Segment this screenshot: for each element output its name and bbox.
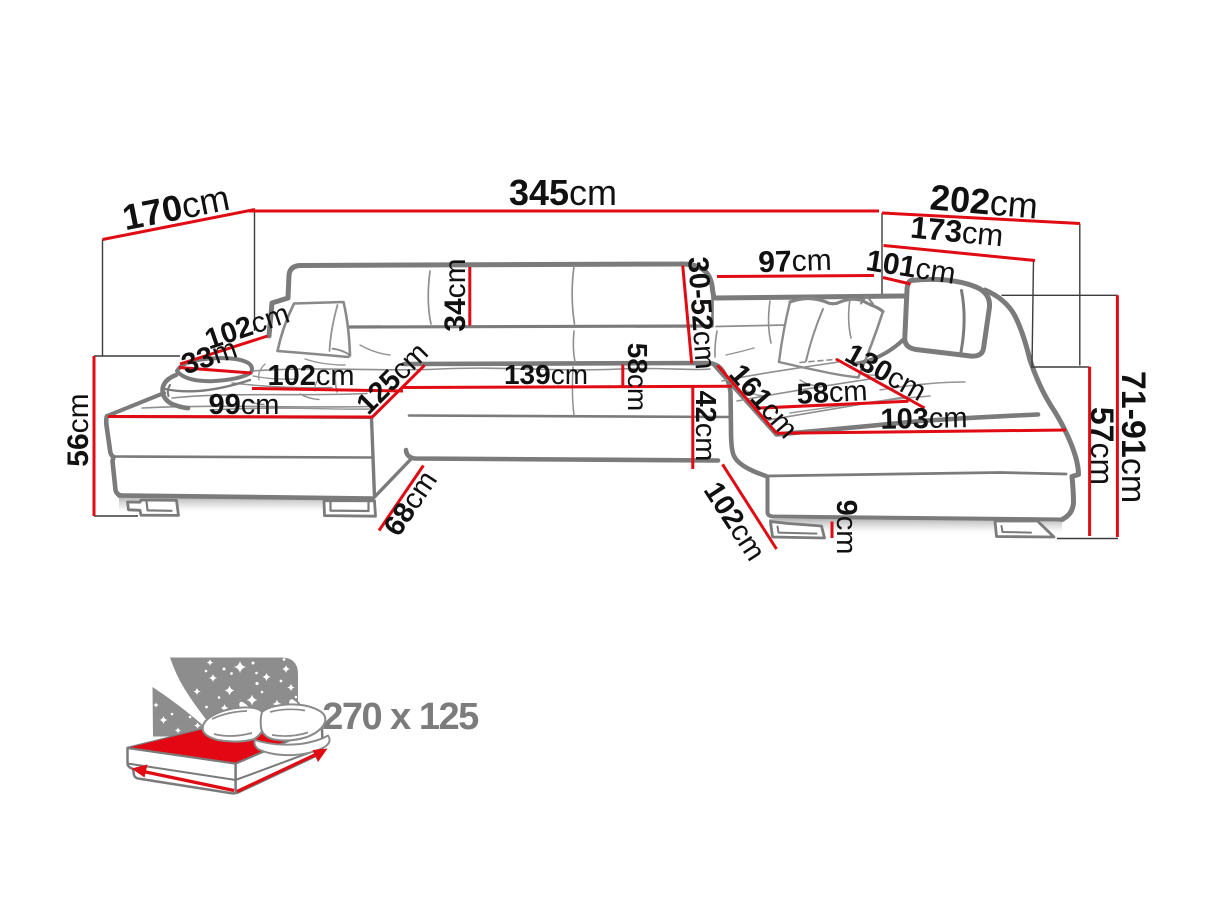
svg-text:270 x 125: 270 x 125 — [322, 696, 479, 738]
svg-text:56cm: 56cm — [62, 393, 95, 466]
svg-text:102cm: 102cm — [267, 360, 354, 392]
svg-text:139cm: 139cm — [504, 359, 588, 390]
svg-text:57cm: 57cm — [1084, 407, 1120, 485]
svg-text:345cm: 345cm — [509, 172, 617, 213]
svg-text:58cm: 58cm — [796, 375, 869, 411]
svg-text:9cm: 9cm — [830, 500, 862, 555]
svg-text:103cm: 103cm — [880, 402, 968, 436]
svg-text:99cm: 99cm — [209, 389, 280, 421]
svg-text:58cm: 58cm — [622, 343, 653, 411]
svg-text:97cm: 97cm — [758, 244, 832, 280]
svg-text:42cm: 42cm — [689, 391, 721, 462]
svg-text:34cm: 34cm — [439, 258, 472, 331]
